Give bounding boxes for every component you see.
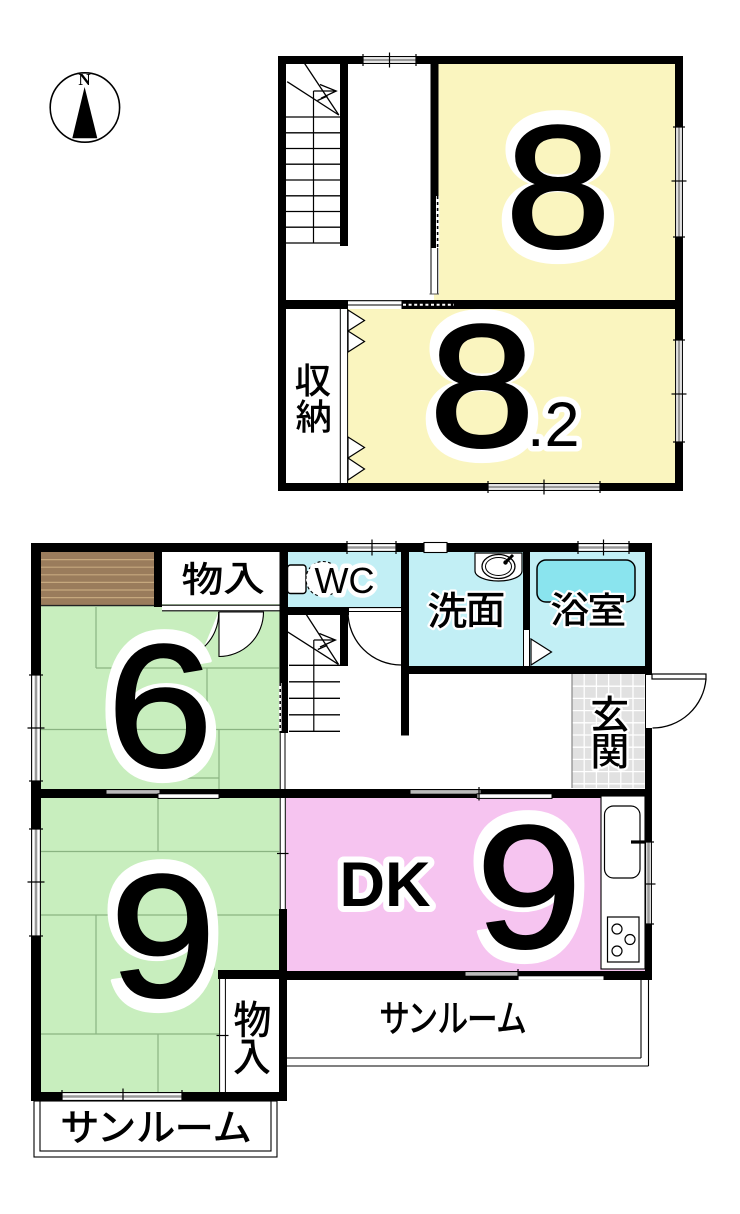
svg-text:DK: DK — [340, 850, 431, 920]
svg-text:6: 6 — [107, 608, 212, 803]
svg-text:WC: WC — [315, 560, 375, 601]
svg-text:N: N — [78, 70, 91, 89]
svg-text:9: 9 — [476, 789, 581, 984]
svg-text:8: 8 — [429, 288, 534, 483]
svg-text:9: 9 — [110, 838, 215, 1033]
svg-text:.2: .2 — [527, 390, 580, 460]
svg-text:8: 8 — [505, 89, 610, 284]
